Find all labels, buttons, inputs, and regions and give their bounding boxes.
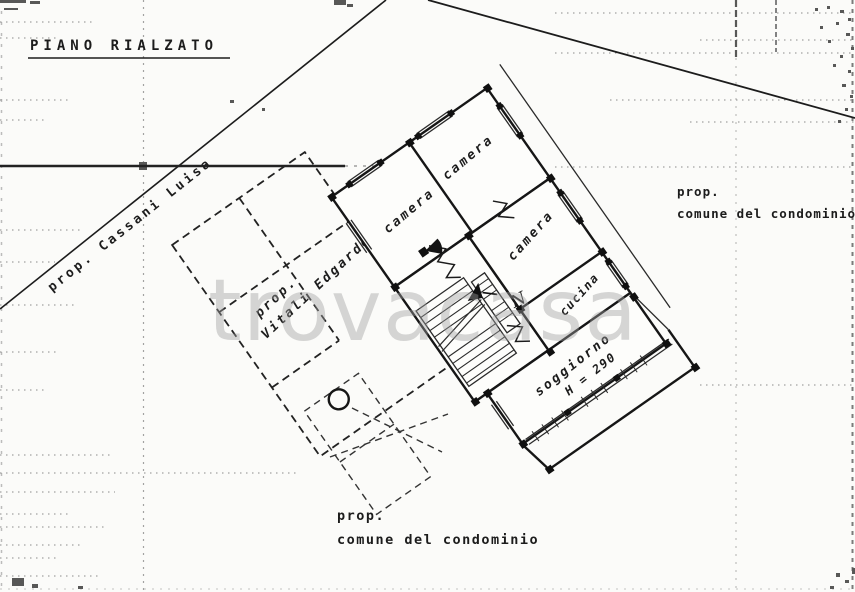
plan-title-block: PIANO RIALZATO — [28, 38, 230, 58]
owner-bottom-line2: comune del condominio — [337, 532, 539, 548]
owner-label-cassani: prop. Cassani Luisa — [45, 155, 215, 295]
owner-block-right: prop. comune del condominio — [677, 184, 855, 221]
owner-right-line1: prop. — [677, 184, 720, 199]
owner-right-line2: comune del condominio — [677, 206, 855, 221]
scanned-floorplan-page: PIANO RIALZATO prop. Cassani Luisa prop.… — [0, 0, 855, 592]
owner-bottom-line1: prop. — [337, 508, 385, 524]
floorplan-drawing: PIANO RIALZATO prop. Cassani Luisa prop.… — [0, 0, 855, 592]
watermark-trovacasa: trovacasa — [208, 261, 638, 361]
owner-block-bottom: prop. comune del condominio — [337, 508, 539, 548]
terrace-circle-symbol — [325, 385, 353, 413]
plan-title: PIANO RIALZATO — [30, 38, 218, 54]
